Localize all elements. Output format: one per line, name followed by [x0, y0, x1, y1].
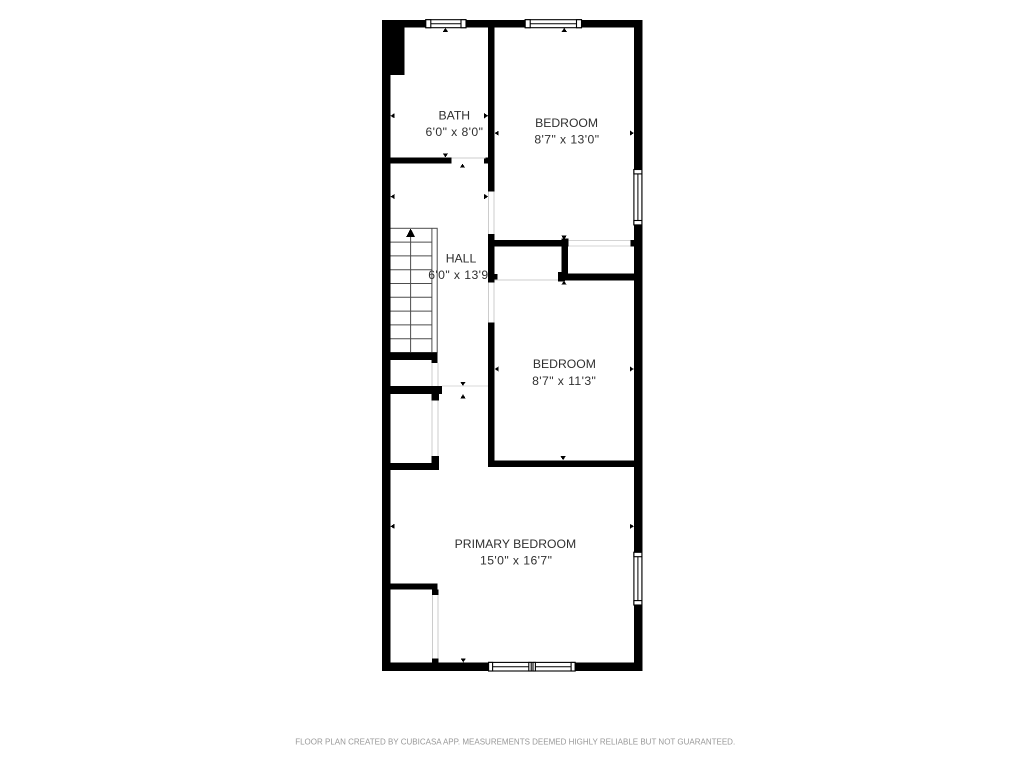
- svg-text:HALL: HALL: [446, 251, 477, 265]
- svg-text:8'7" x 13'0": 8'7" x 13'0": [534, 132, 599, 146]
- svg-text:6'0" x 8'0": 6'0" x 8'0": [425, 125, 483, 139]
- svg-text:6'0" x 13'9": 6'0" x 13'9": [428, 268, 493, 282]
- svg-text:FLOOR PLAN CREATED BY CUBICASA: FLOOR PLAN CREATED BY CUBICASA APP. MEAS…: [295, 738, 735, 747]
- svg-text:BEDROOM: BEDROOM: [533, 357, 596, 371]
- svg-text:8'7" x 11'3": 8'7" x 11'3": [532, 374, 596, 388]
- svg-text:BATH: BATH: [438, 109, 470, 123]
- svg-text:15'0" x 16'7": 15'0" x 16'7": [480, 554, 552, 568]
- svg-text:PRIMARY BEDROOM: PRIMARY BEDROOM: [455, 537, 576, 551]
- svg-text:BEDROOM: BEDROOM: [535, 116, 598, 130]
